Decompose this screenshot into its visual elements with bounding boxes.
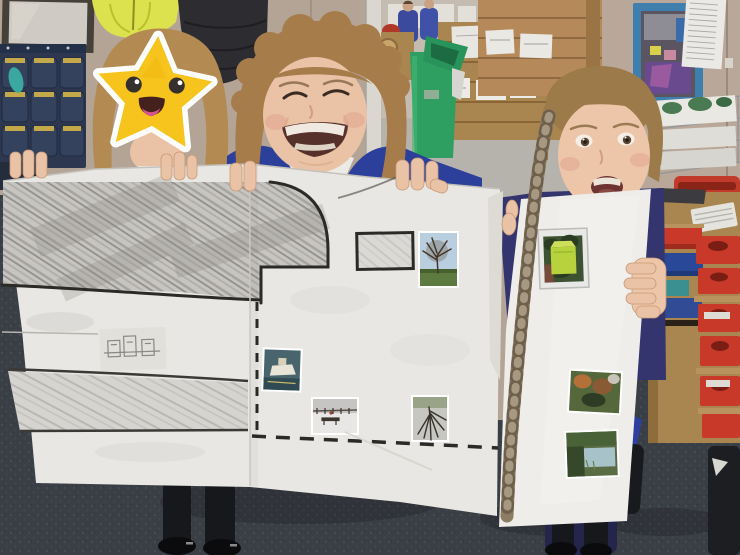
photo-boat	[261, 347, 303, 392]
poster-edge-fold	[488, 191, 503, 380]
list-paper	[682, 0, 727, 69]
building-outline	[357, 233, 414, 270]
child-star-hand-right	[161, 152, 197, 180]
photo-tree-reflection	[411, 395, 449, 442]
photo-grit-bin	[538, 228, 589, 289]
rack-papers	[653, 95, 737, 170]
photo-bare-tree	[418, 231, 459, 288]
pocket-organizer	[0, 44, 86, 168]
wire-tray-rack	[650, 95, 740, 175]
hinge-top	[725, 58, 733, 68]
photo-autumn-shrubs	[567, 369, 623, 416]
photo-snowy-bench	[311, 397, 359, 435]
child-star-hand-left	[10, 150, 47, 178]
sketch-card	[99, 327, 166, 371]
dark-floor-object	[708, 446, 740, 555]
classroom-photo	[0, 0, 740, 555]
photo-garden-pond	[564, 429, 620, 479]
